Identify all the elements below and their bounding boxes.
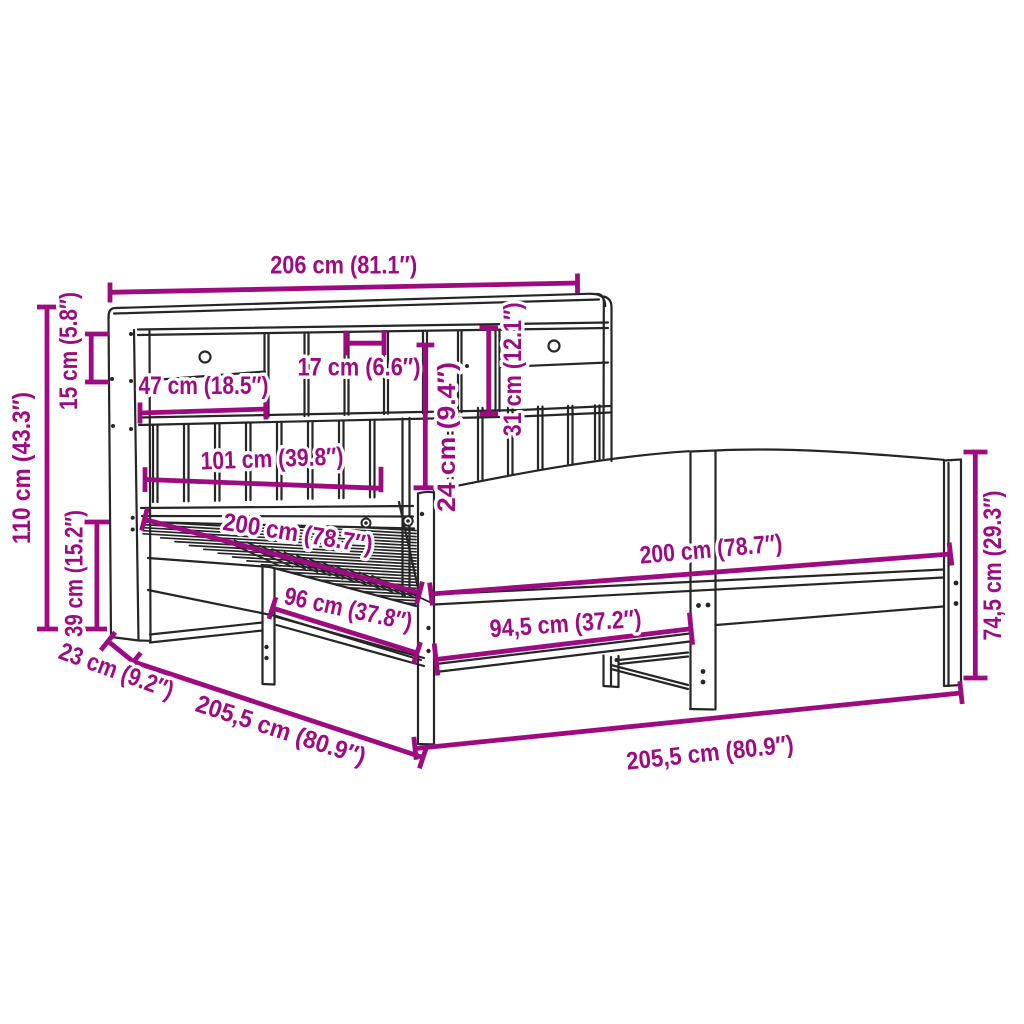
- svg-text:24 cm (9.4″): 24 cm (9.4″): [433, 362, 461, 512]
- svg-text:74,5 cm (29.3″): 74,5 cm (29.3″): [979, 491, 1007, 641]
- svg-text:101 cm (39.8″): 101 cm (39.8″): [200, 443, 344, 476]
- svg-text:39 cm (15.2″): 39 cm (15.2″): [61, 510, 89, 637]
- svg-text:31 cm (12.1″): 31 cm (12.1″): [499, 302, 527, 436]
- svg-text:110 cm (43.3″): 110 cm (43.3″): [8, 392, 36, 544]
- svg-text:47 cm (18.5″): 47 cm (18.5″): [139, 372, 269, 400]
- svg-text:17 cm (6.6″): 17 cm (6.6″): [298, 354, 421, 382]
- svg-text:206 cm (81.1″): 206 cm (81.1″): [270, 252, 417, 280]
- svg-text:15 cm (5.8″): 15 cm (5.8″): [55, 292, 83, 410]
